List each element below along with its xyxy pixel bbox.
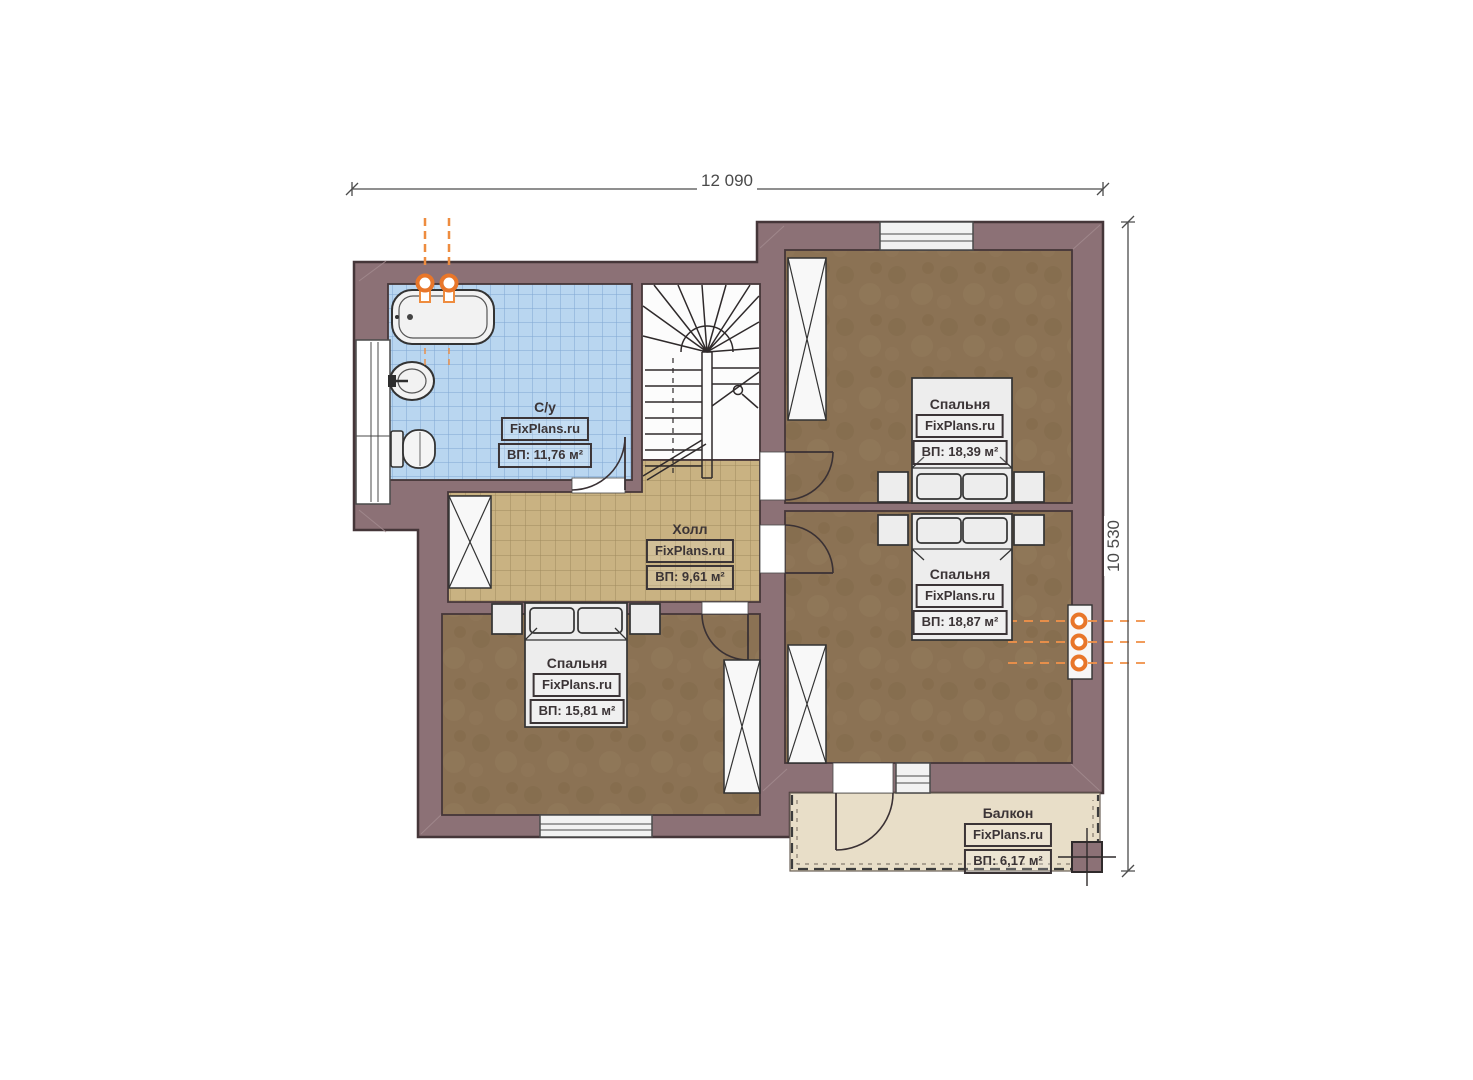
room-area: ВП: 11,76 м²: [498, 443, 592, 467]
floor-plan-page: 12 090 10 530 С/у FixPlans.ru ВП: 11,76 …: [0, 0, 1473, 1080]
room-area: ВП: 18,87 м²: [913, 610, 1008, 634]
nightstand: [492, 604, 522, 634]
nightstand: [1014, 472, 1044, 502]
toilet: [391, 430, 435, 468]
room-watermark: FixPlans.ru: [646, 539, 734, 563]
wardrobe-bedroom-left: [724, 660, 760, 793]
window-balcony-side: [896, 763, 930, 793]
room-watermark: FixPlans.ru: [501, 417, 589, 441]
room-name: Балкон: [983, 805, 1034, 821]
room-area: ВП: 15,81 м²: [530, 699, 625, 723]
nightstand: [878, 515, 908, 545]
room-watermark: FixPlans.ru: [533, 673, 621, 697]
window-bedroom-left-bottom: [540, 815, 652, 837]
wardrobe-bedroom-bottom-right: [788, 645, 826, 763]
room-watermark: FixPlans.ru: [964, 823, 1052, 847]
window-bathroom-left: [356, 340, 390, 504]
nightstand: [630, 604, 660, 634]
floor-plan-drawing: [0, 0, 1473, 1080]
room-name: Спальня: [547, 655, 607, 671]
room-area: ВП: 18,39 м²: [913, 440, 1008, 464]
room-label-balcony: Балкон FixPlans.ru ВП: 6,17 м²: [964, 805, 1052, 874]
room-watermark: FixPlans.ru: [916, 584, 1004, 608]
dimension-height-label: 10 530: [1104, 516, 1124, 576]
wardrobe-hall: [449, 496, 491, 588]
room-area: ВП: 6,17 м²: [964, 849, 1052, 873]
window-bedroom-top: [880, 222, 973, 250]
nightstand: [878, 472, 908, 502]
room-watermark: FixPlans.ru: [916, 414, 1004, 438]
room-name: Спальня: [930, 566, 990, 582]
room-name: Спальня: [930, 396, 990, 412]
room-label-hall: Холл FixPlans.ru ВП: 9,61 м²: [646, 521, 734, 590]
sink: [388, 362, 434, 400]
dimension-width-label: 12 090: [697, 171, 757, 191]
wardrobe-bedroom-top-right: [788, 258, 826, 420]
room-label-bedroom-top-right: Спальня FixPlans.ru ВП: 18,39 м²: [913, 396, 1008, 465]
room-label-bathroom: С/у FixPlans.ru ВП: 11,76 м²: [498, 399, 592, 468]
room-label-bedroom-left: Спальня FixPlans.ru ВП: 15,81 м²: [530, 655, 625, 724]
room-name: Холл: [672, 521, 707, 537]
balcony-floor: [790, 793, 1116, 886]
nightstand: [1014, 515, 1044, 545]
room-label-bedroom-bottom-right: Спальня FixPlans.ru ВП: 18,87 м²: [913, 566, 1008, 635]
room-area: ВП: 9,61 м²: [646, 565, 734, 589]
room-name: С/у: [534, 399, 556, 415]
